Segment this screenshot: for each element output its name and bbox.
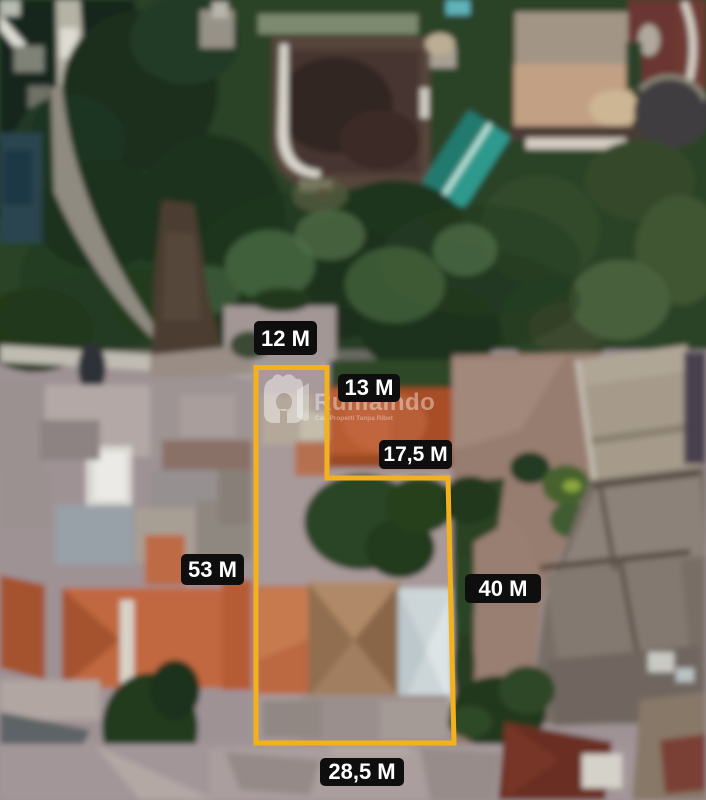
svg-text:13 M: 13 M [345, 375, 394, 400]
svg-text:53 M: 53 M [188, 557, 237, 582]
svg-text:40 M: 40 M [479, 576, 528, 601]
svg-text:12 M: 12 M [261, 326, 310, 351]
svg-text:17,5 M: 17,5 M [383, 443, 447, 466]
svg-text:28,5 M: 28,5 M [328, 759, 395, 784]
